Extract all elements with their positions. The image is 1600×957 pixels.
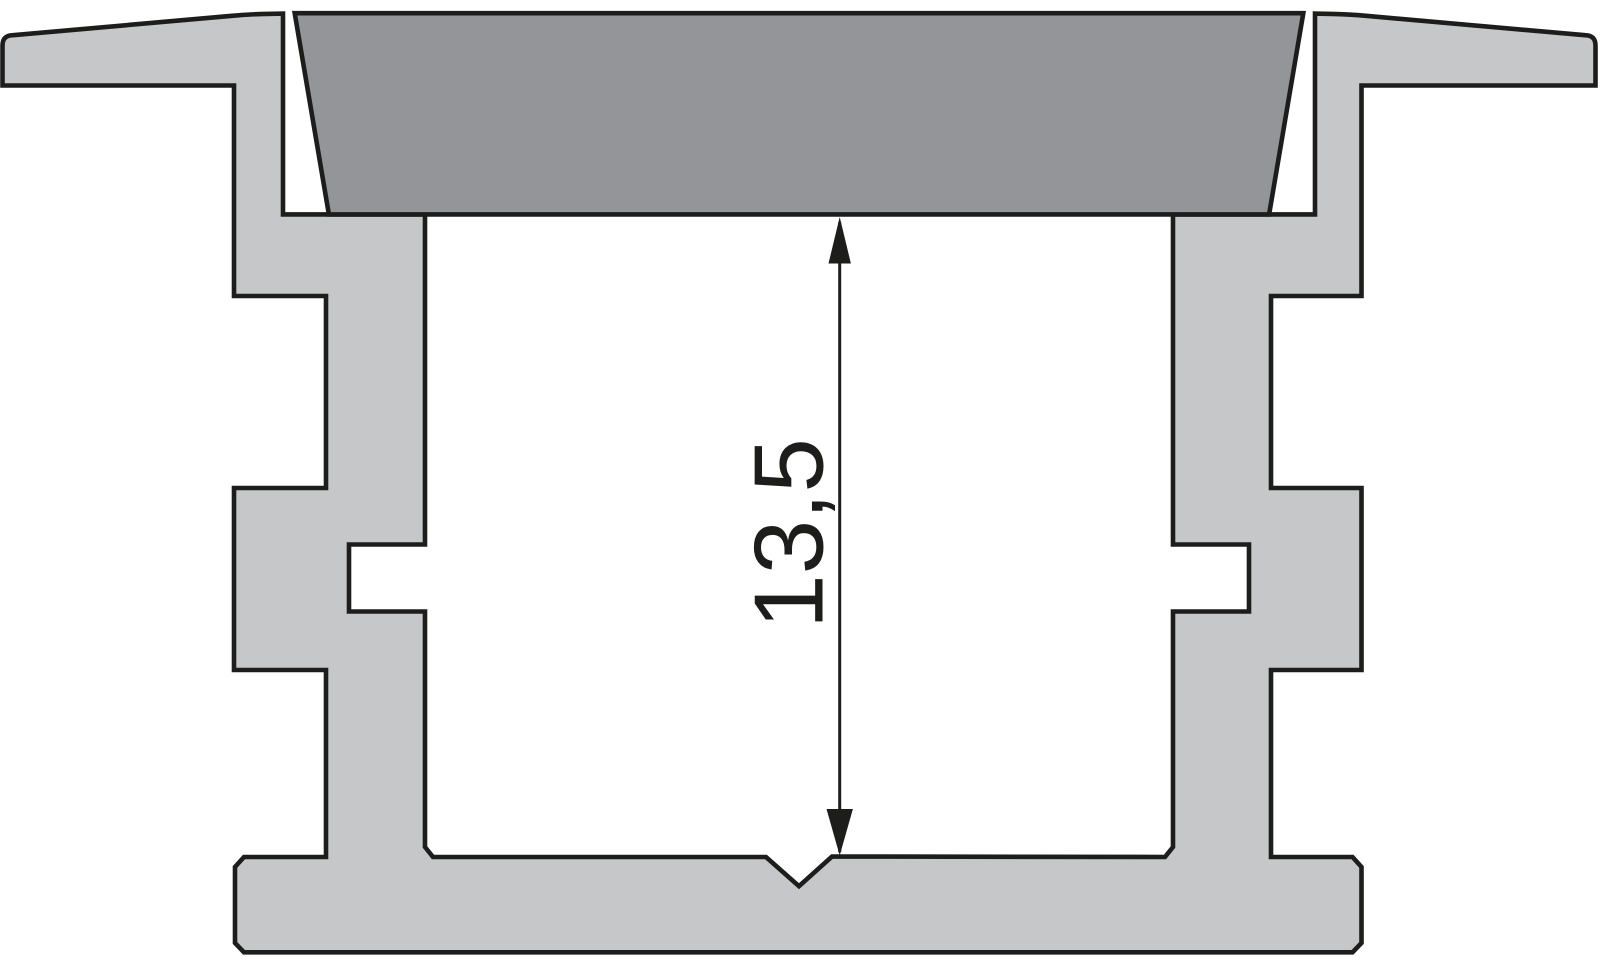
svg-text:13,5: 13,5 <box>734 438 844 629</box>
